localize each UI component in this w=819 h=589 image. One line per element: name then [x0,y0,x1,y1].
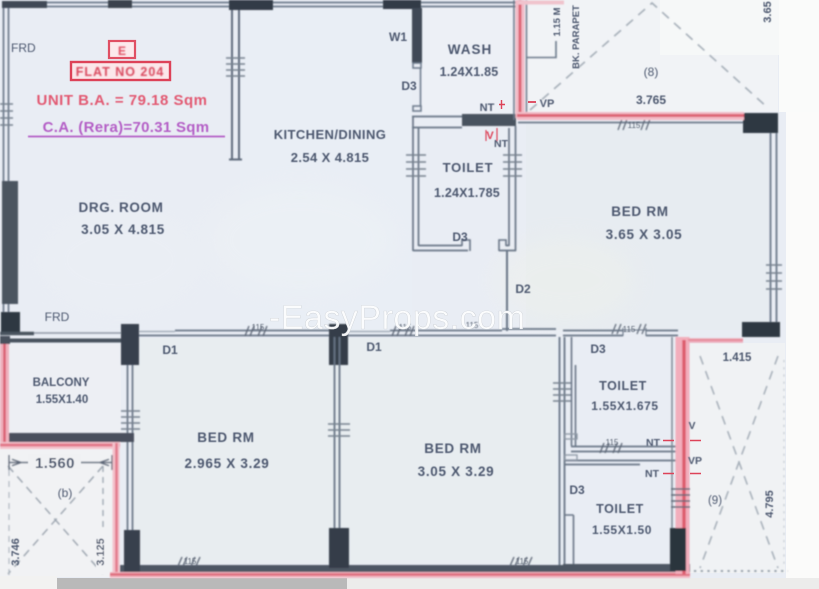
svg-text:(8): (8) [644,65,659,79]
svg-text:D1: D1 [366,340,382,354]
svg-text:W1: W1 [389,30,407,44]
svg-text:UNIT B.A. = 79.18 Sqm: UNIT B.A. = 79.18 Sqm [37,92,208,109]
svg-text:BED RM: BED RM [611,204,668,219]
svg-text:BED RM: BED RM [197,430,254,445]
svg-text:115: 115 [252,323,265,332]
svg-text:3.765: 3.765 [636,93,666,107]
svg-text:115: 115 [628,121,641,130]
svg-text:E: E [118,44,126,58]
svg-text:DRG. ROOM: DRG. ROOM [79,200,164,215]
svg-text:D3: D3 [569,483,585,497]
svg-text:3.125: 3.125 [95,538,107,566]
svg-text:BED RM: BED RM [424,441,481,456]
svg-text:115: 115 [184,557,197,566]
svg-text:BALCONY: BALCONY [33,377,90,389]
svg-text:BK. PARAPET: BK. PARAPET [571,5,582,69]
svg-text:3.05 X 4.815: 3.05 X 4.815 [81,222,165,237]
svg-text:D3: D3 [452,230,468,244]
svg-text:NT: NT [646,437,661,449]
svg-text:3.746: 3.746 [10,538,22,566]
svg-text:V: V [688,420,695,432]
svg-text:TOILET: TOILET [443,160,494,175]
svg-text:D3: D3 [401,79,417,93]
svg-text:1.24X1.85: 1.24X1.85 [440,65,499,79]
svg-text:3.65 X 3.05: 3.65 X 3.05 [606,227,683,242]
svg-text:KITCHEN/DINING: KITCHEN/DINING [274,127,387,142]
svg-text:D3: D3 [590,342,606,356]
svg-text:NT: NT [480,102,495,114]
svg-text:(b): (b) [58,486,73,500]
svg-text:1.15 M: 1.15 M [552,7,563,36]
svg-text:FLAT NO 204: FLAT NO 204 [76,65,165,79]
svg-text:VP: VP [688,455,702,467]
svg-text:115: 115 [623,325,636,334]
svg-text:(9): (9) [708,495,722,507]
svg-text:-EasyProps.com: -EasyProps.com [269,299,525,337]
svg-text:VP: VP [540,98,555,110]
svg-text:3.65: 3.65 [762,1,774,22]
svg-text:FRD: FRD [45,310,70,324]
svg-text:1.24X1.785: 1.24X1.785 [434,186,500,200]
svg-text:115: 115 [516,557,529,566]
svg-text:1.415: 1.415 [723,352,752,364]
svg-text:1.55X1.50: 1.55X1.50 [592,523,652,537]
svg-text:1.560: 1.560 [35,455,75,472]
svg-text:V: V [486,130,494,142]
svg-text:4.795: 4.795 [764,490,776,518]
svg-text:1.55X1.675: 1.55X1.675 [591,399,658,413]
svg-text:2.54 X 4.815: 2.54 X 4.815 [291,150,370,165]
svg-text:2.965 X 3.29: 2.965 X 3.29 [185,456,270,471]
svg-text:115: 115 [606,438,619,447]
svg-text:1.55X1.40: 1.55X1.40 [36,394,88,406]
svg-text:D1: D1 [162,343,178,357]
svg-text:D2: D2 [515,282,531,296]
svg-text:TOILET: TOILET [596,502,644,516]
svg-text:C.A. (Rera)=70.31 Sqm: C.A. (Rera)=70.31 Sqm [43,119,210,136]
svg-text:TOILET: TOILET [599,379,647,393]
svg-text:NT: NT [645,468,660,480]
svg-text:FRD: FRD [11,41,36,55]
svg-text:NT: NT [494,138,509,150]
svg-text:WASH: WASH [448,42,493,57]
svg-text:3.05 X 3.29: 3.05 X 3.29 [418,464,495,479]
